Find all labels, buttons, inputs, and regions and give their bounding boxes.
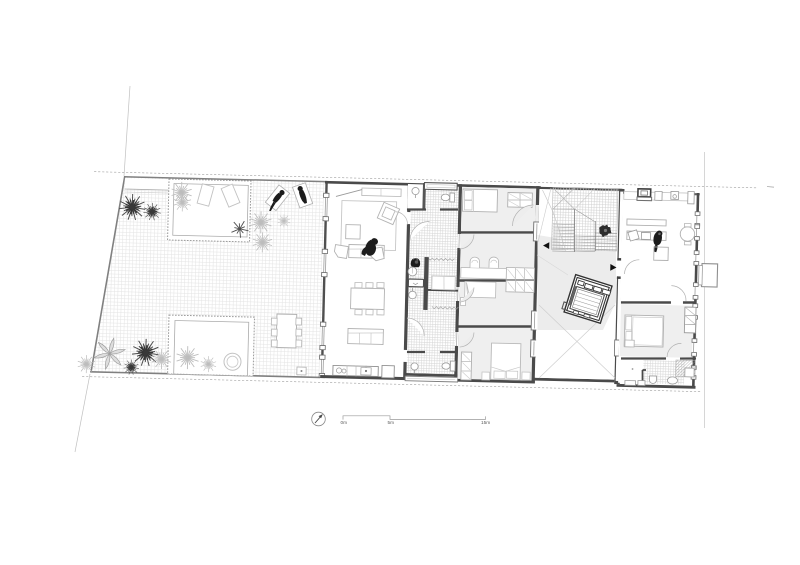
svg-text:0m: 0m: [341, 420, 348, 425]
svg-text:15m: 15m: [481, 420, 490, 425]
svg-text:5m: 5m: [388, 420, 395, 425]
